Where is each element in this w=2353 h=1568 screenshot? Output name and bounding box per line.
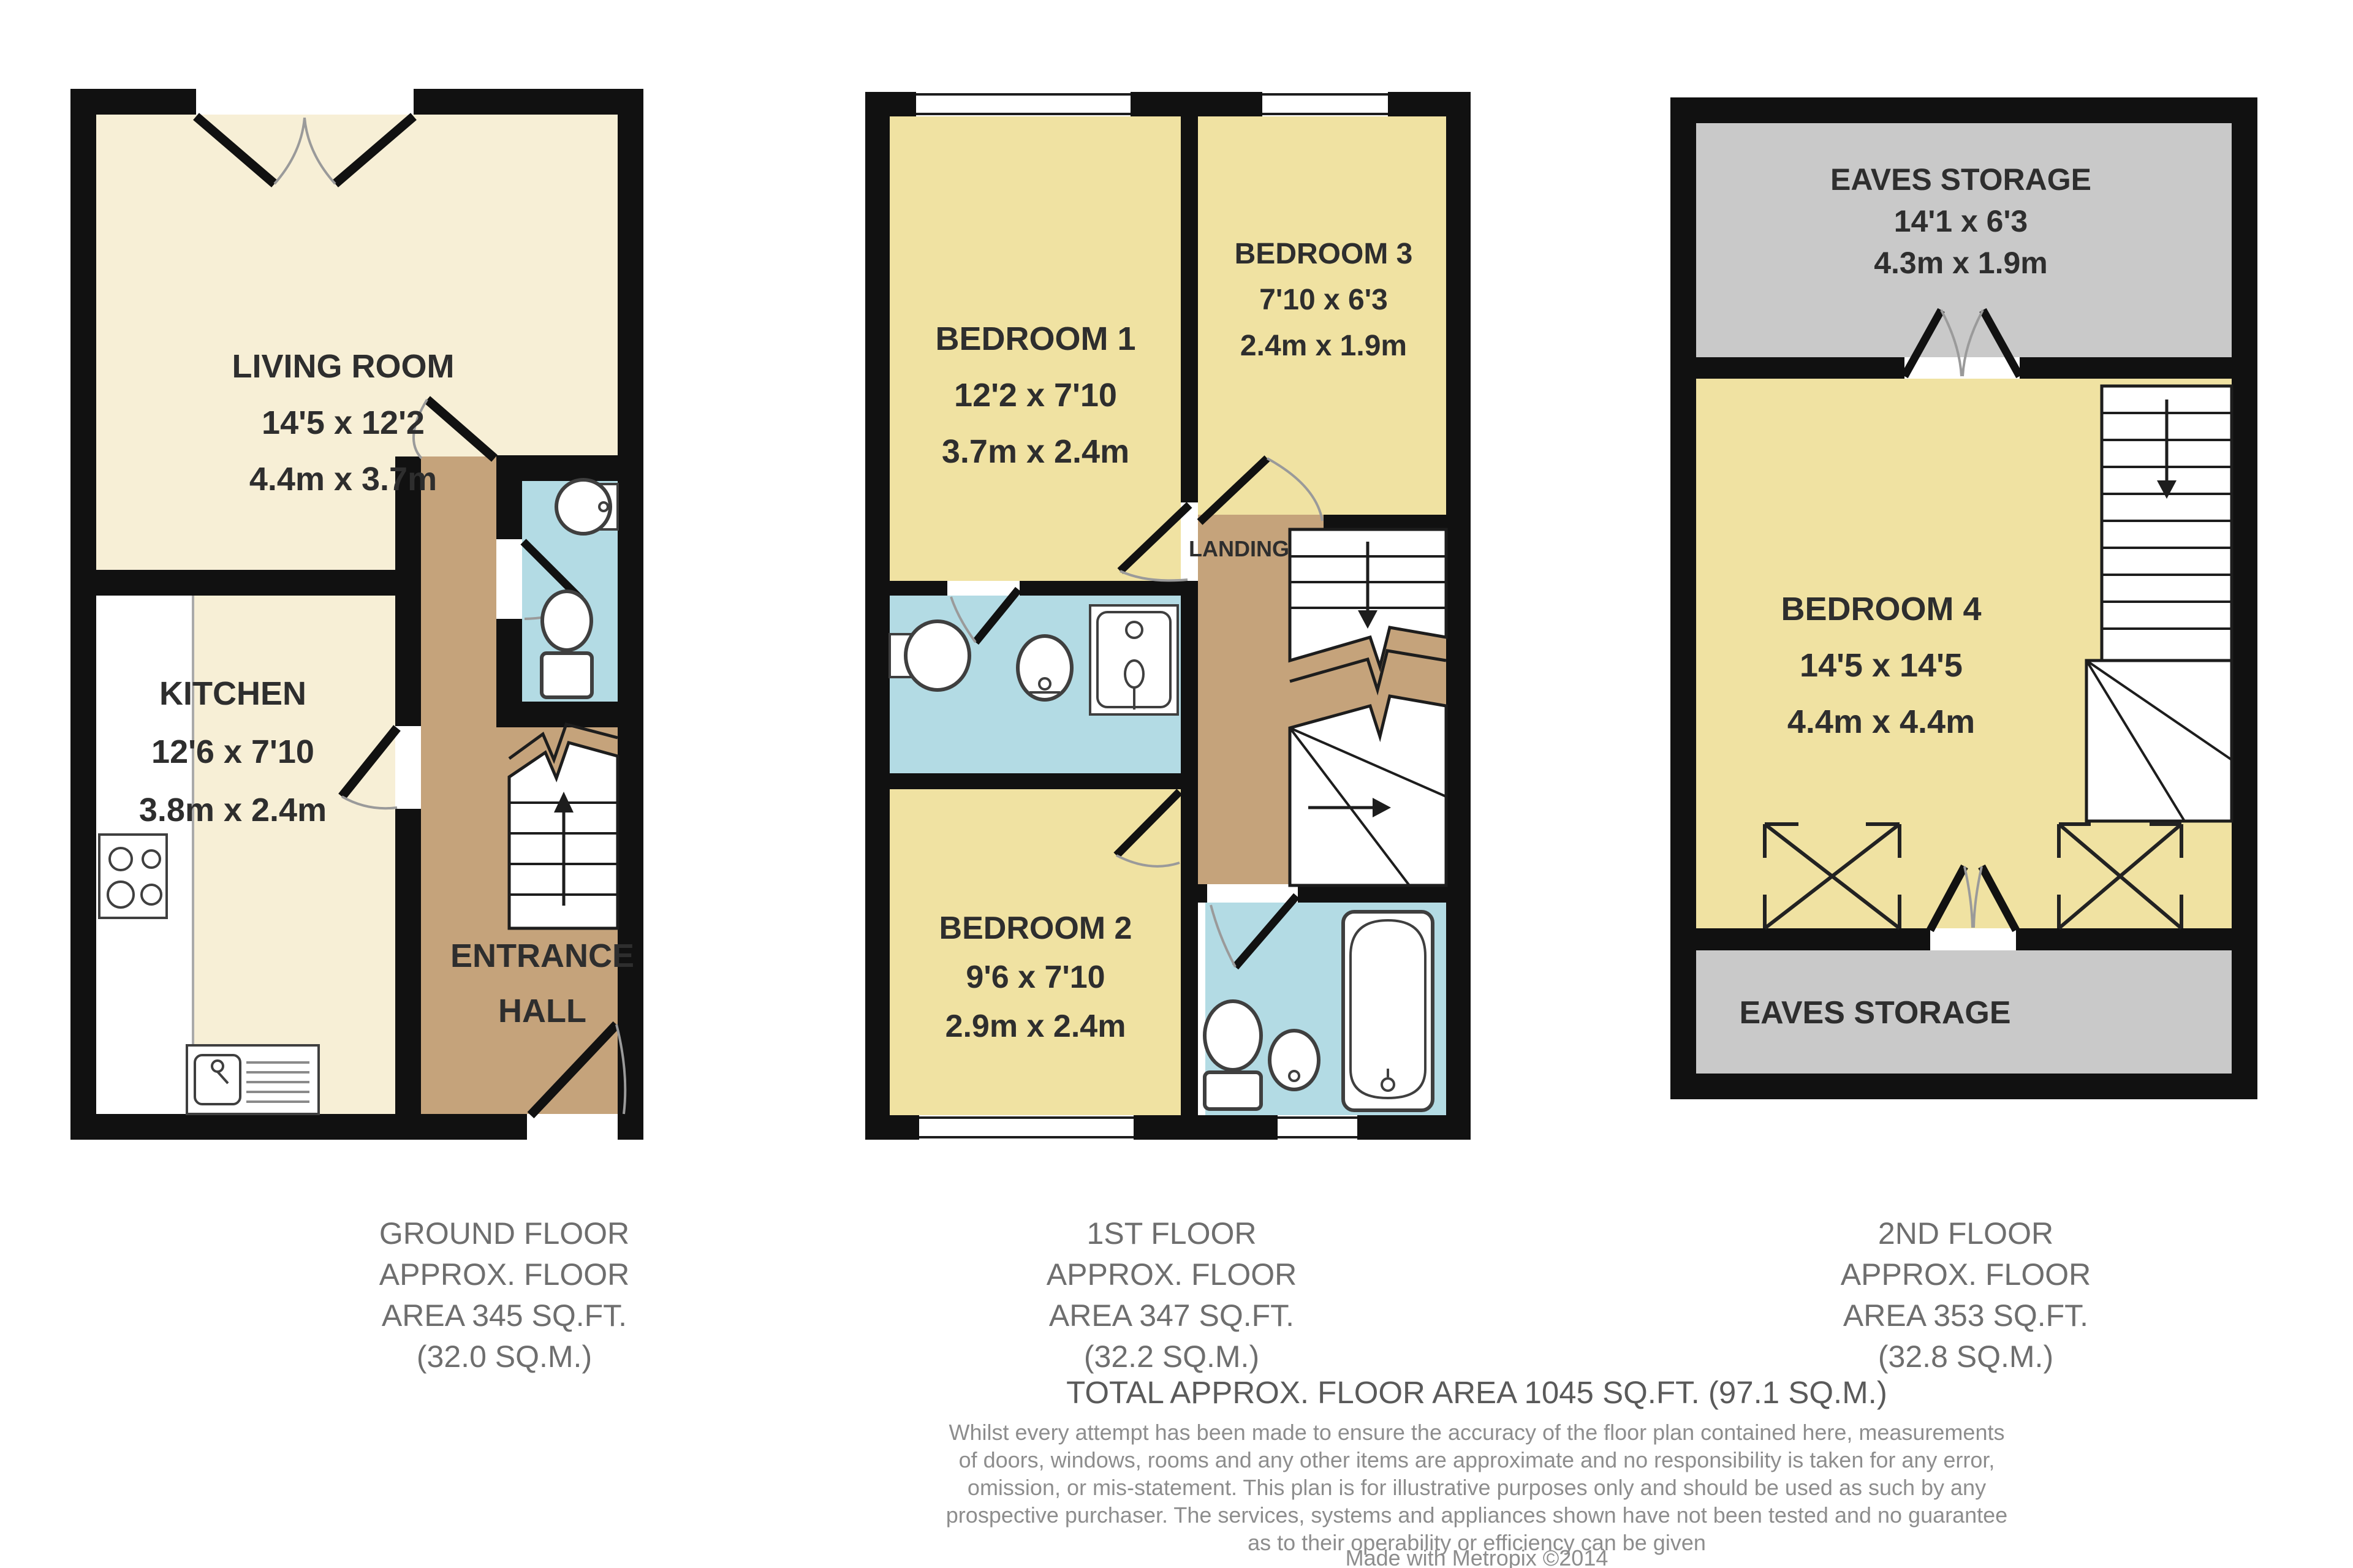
wall2-center-vertical	[1181, 581, 1198, 1115]
floorplan-canvas: LIVING ROOM 14'5 x 12'2 4.4m x 3.7m KITC…	[0, 0, 2353, 1568]
bedroom1-metric: 3.7m x 2.4m	[942, 433, 1129, 470]
bedroom3-imperial: 7'10 x 6'3	[1259, 284, 1388, 316]
living-room-imperial: 14'5 x 12'2	[262, 404, 425, 441]
wall-outer-right	[618, 89, 643, 1140]
bathroom-basin-fixture	[1270, 1031, 1319, 1089]
bedroom4-imperial: 14'5 x 14'5	[1800, 647, 1963, 684]
wall3-outer-right	[2232, 97, 2257, 1099]
wall2-outer-bottom-b	[1134, 1115, 1278, 1140]
bedroom3-metric: 2.4m x 1.9m	[1240, 330, 1407, 362]
second-caption-line3: AREA 353 SQ.FT.	[1843, 1298, 2088, 1333]
second-floor-stairs	[2086, 386, 2232, 821]
wall-outer-top-right	[414, 89, 643, 115]
wall2-bed1-bottom-b	[1020, 581, 1181, 596]
wall-wc-top	[496, 455, 643, 481]
bedroom3-label: BEDROOM 3	[1235, 238, 1413, 270]
wall2-outer-top-b	[1131, 92, 1262, 116]
wall-living-kitchen	[70, 570, 395, 596]
wall3-outer-left	[1670, 97, 1696, 1099]
disclaimer-line3: omission, or mis-statement. This plan is…	[968, 1475, 1986, 1500]
first-caption-line2: APPROX. FLOOR	[1047, 1257, 1297, 1292]
wall3-eaves-bottom-b	[2016, 928, 2232, 950]
second-floor-plan: EAVES STORAGE 14'1 x 6'3 4.3m x 1.9m BED…	[1670, 97, 2257, 1099]
kitchen-label: KITCHEN	[159, 675, 306, 712]
living-room-label: LIVING ROOM	[232, 348, 455, 385]
wall2-outer-bottom-a	[865, 1115, 919, 1140]
wall-outer-bottom-left	[70, 1114, 527, 1140]
eaves-top-label: EAVES STORAGE	[1830, 162, 2091, 197]
eaves-bottom-label: EAVES STORAGE	[1739, 995, 2010, 1031]
bathtub-fixture	[1343, 912, 1433, 1110]
kitchen-sink-fixture	[187, 1045, 319, 1114]
bedroom2-imperial: 9'6 x 7'10	[966, 960, 1105, 995]
ensuite-basin-fixture	[1018, 636, 1072, 700]
disclaimer-line1: Whilst every attempt has been made to en…	[949, 1420, 2005, 1445]
kitchen-metric: 3.8m x 2.4m	[139, 792, 327, 828]
bedroom1-label: BEDROOM 1	[935, 320, 1135, 357]
wc-basin-fixture	[556, 480, 618, 534]
wall2-bathroom-top-stub	[1198, 884, 1207, 903]
wall-wc-left-lower	[496, 619, 522, 702]
made-with-credit: Made with Metropix ©2014	[1346, 1545, 1608, 1568]
floorplan-page: LIVING ROOM 14'5 x 12'2 4.4m x 3.7m KITC…	[0, 0, 2353, 1568]
ground-floor-plan: LIVING ROOM 14'5 x 12'2 4.4m x 3.7m KITC…	[70, 89, 643, 1140]
wall2-bed3-bottom	[1324, 515, 1446, 529]
bathroom-window	[1278, 1115, 1357, 1140]
entrance-hall-label-line1: ENTRANCE	[450, 937, 634, 974]
wall-outer-left	[70, 89, 96, 1140]
bedroom2-metric: 2.9m x 2.4m	[945, 1009, 1126, 1044]
total-area-line: TOTAL APPROX. FLOOR AREA 1045 SQ.FT. (97…	[1066, 1375, 1887, 1410]
bedroom4-metric: 4.4m x 4.4m	[1787, 703, 1975, 740]
ground-caption-line1: GROUND FLOOR	[379, 1216, 629, 1251]
second-caption-line4: (32.8 SQ.M.)	[1878, 1339, 2053, 1374]
eaves-top-imperial: 14'1 x 6'3	[1894, 204, 2028, 238]
second-caption-line2: APPROX. FLOOR	[1841, 1257, 2091, 1292]
disclaimer-line4: prospective purchaser. The services, sys…	[946, 1502, 2007, 1528]
eaves-storage-top-floor	[1696, 123, 2232, 357]
wall-wc-bottom	[496, 702, 643, 727]
wall3-eaves-bottom-a	[1696, 928, 1930, 950]
wall2-bed1-bottom-a	[865, 581, 947, 596]
ground-caption-line4: (32.0 SQ.M.)	[417, 1339, 592, 1374]
bedroom2-label: BEDROOM 2	[939, 911, 1132, 946]
wall3-outer-bottom	[1670, 1074, 2257, 1099]
bedroom3-window	[1262, 92, 1388, 116]
shower-fixture	[1090, 605, 1178, 714]
hob-fixture	[99, 835, 167, 918]
wall3-outer-top	[1670, 97, 2257, 123]
disclaimer-line2: of doors, windows, rooms and any other i…	[959, 1447, 1995, 1472]
living-room-metric: 4.4m x 3.7m	[249, 461, 437, 498]
wall-kitchen-hall-lower	[395, 809, 421, 1114]
entrance-hall-label-line2: HALL	[498, 993, 586, 1029]
eaves-top-metric: 4.3m x 1.9m	[1874, 246, 2048, 280]
wall-outer-bottom-right	[625, 1114, 643, 1140]
bedroom4-label: BEDROOM 4	[1781, 591, 1981, 627]
wall3-eaves-top-b	[2020, 357, 2232, 379]
wall2-ensuite-bottom	[865, 773, 1181, 789]
bedroom1-window	[916, 92, 1131, 116]
wall2-outer-left	[865, 92, 890, 1140]
kitchen-imperial: 12'6 x 7'10	[151, 733, 314, 770]
bedroom1-imperial: 12'2 x 7'10	[954, 377, 1117, 414]
bedroom2-window	[919, 1115, 1134, 1140]
wall3-eaves-top-a	[1696, 357, 1904, 379]
landing-label: LANDING	[1189, 536, 1289, 561]
first-caption-line4: (32.2 SQ.M.)	[1084, 1339, 1259, 1374]
footer-text: TOTAL APPROX. FLOOR AREA 1045 SQ.FT. (97…	[946, 1375, 2007, 1568]
first-floor-plan: BEDROOM 1 12'2 x 7'10 3.7m x 2.4m BEDROO…	[865, 92, 1471, 1140]
wall-wc-left-upper	[496, 481, 522, 539]
second-caption-line1: 2ND FLOOR	[1878, 1216, 2053, 1251]
wall2-outer-bottom-c	[1357, 1115, 1471, 1140]
floor-captions: GROUND FLOOR APPROX. FLOOR AREA 345 SQ.F…	[379, 1216, 2091, 1374]
first-caption-line1: 1ST FLOOR	[1087, 1216, 1257, 1251]
ground-caption-line3: AREA 345 SQ.FT.	[382, 1298, 627, 1333]
bathroom-toilet-fixture	[1205, 1001, 1261, 1109]
wall2-bed1-bed3	[1181, 116, 1198, 502]
ground-caption-line2: APPROX. FLOOR	[379, 1257, 629, 1292]
wall2-outer-right	[1446, 92, 1471, 1140]
first-caption-line3: AREA 347 SQ.FT.	[1049, 1298, 1294, 1333]
